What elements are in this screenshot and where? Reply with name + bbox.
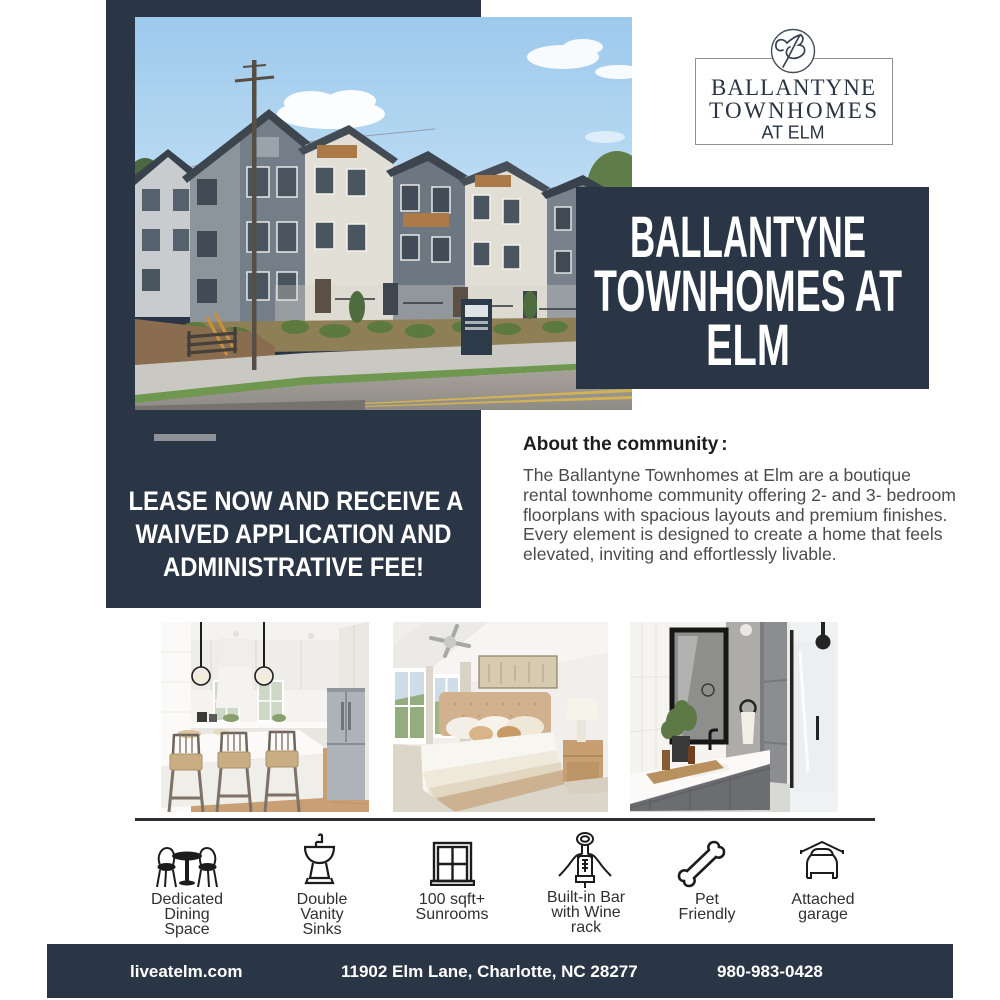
svg-text:TOWNHOMES: TOWNHOMES [709,98,877,123]
svg-text:BALLANTYNE: BALLANTYNE [711,75,875,100]
svg-text:AT ELM: AT ELM [762,123,825,143]
svg-text:ELM: ELM [706,313,790,378]
